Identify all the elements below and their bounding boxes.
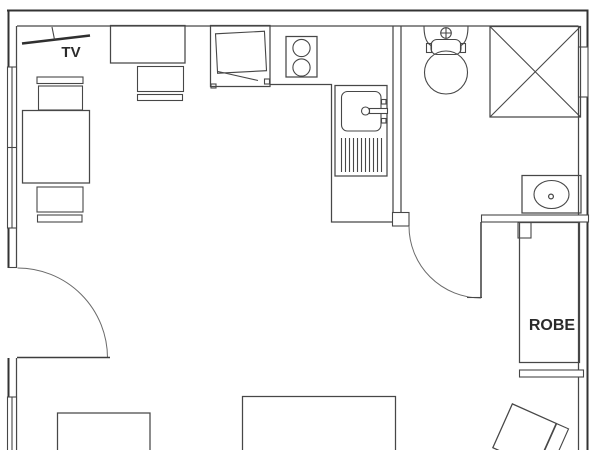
window-left-lower: [8, 397, 17, 450]
burner-bottom: [293, 59, 310, 76]
desk-chair-back: [138, 95, 183, 101]
dining-chair-bottom-seat: [37, 187, 83, 212]
bathroom-door-jamb: [393, 213, 410, 227]
entry-door-swing-arc: [18, 268, 108, 358]
bathroom-door-swing-arc: [409, 226, 481, 298]
toilet-seat-hinge: [431, 40, 461, 55]
tap-knob-bottom: [382, 119, 387, 124]
tap-knob-top: [382, 100, 387, 105]
shower-icon: [490, 27, 581, 118]
lounge-chair-seat: [493, 404, 556, 450]
dining-table: [23, 111, 90, 184]
wardrobe: ROBE: [518, 223, 580, 363]
vanity-icon: [522, 176, 581, 214]
tv-unit: TV: [22, 27, 90, 61]
toilet-icon: [424, 26, 468, 94]
refrigerator: [211, 26, 271, 89]
dining-chair-top-back: [37, 77, 83, 84]
desk: [111, 26, 186, 64]
shower-cross-lines: [490, 27, 581, 118]
drainboard-lines: [342, 138, 382, 172]
kitchen-sink-unit: [335, 86, 388, 177]
bathroom-south-wall: [482, 215, 589, 222]
tv-label: TV: [61, 44, 80, 61]
burner-top: [293, 39, 310, 56]
cooktop-icon: [286, 37, 317, 78]
tap-icon: [362, 107, 370, 115]
toilet-bowl: [425, 51, 468, 94]
vanity-drain: [549, 194, 554, 199]
dining-chair-bottom-back: [38, 215, 83, 222]
tv-screen-line: [22, 36, 90, 44]
window-left-upper: [8, 67, 17, 228]
desk-chair-seat: [138, 67, 184, 92]
lounge-chair: [493, 404, 569, 450]
couch: [58, 413, 151, 450]
robe-closet: [520, 223, 580, 363]
dining-chair-top-seat: [39, 86, 83, 110]
tv-mount: [52, 27, 55, 40]
lounge-chair-armrest: [537, 424, 568, 450]
floor-plan-svg: TV ROBE: [0, 0, 600, 450]
robe-south-wall: [520, 370, 584, 377]
robe-label: ROBE: [529, 317, 576, 334]
floor-plan: TV ROBE: [0, 0, 600, 450]
bed: [243, 397, 396, 450]
tap-handle: [370, 109, 388, 114]
kitchen-counter-edge: [270, 85, 393, 223]
